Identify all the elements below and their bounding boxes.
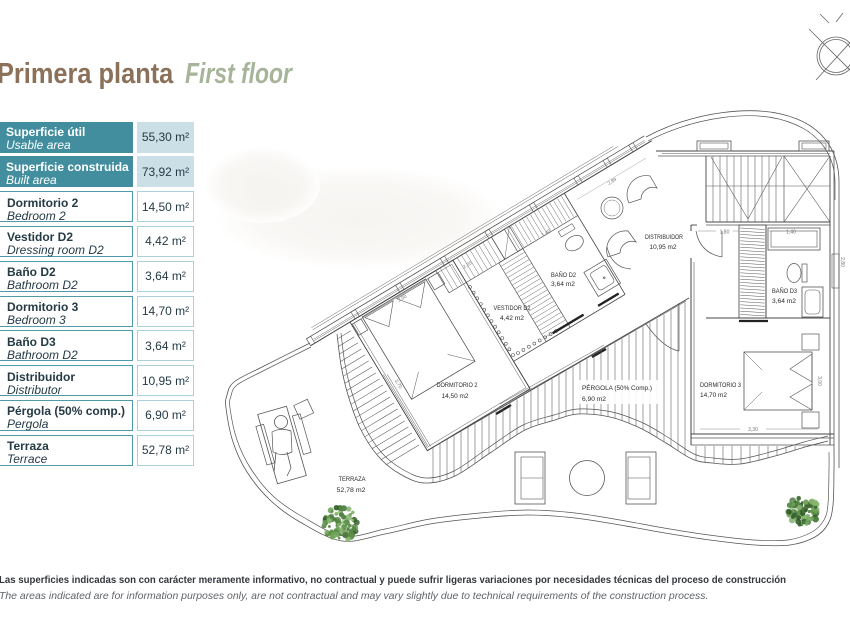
svg-text:6,90 m2: 6,90 m2 <box>582 396 606 403</box>
svg-text:BAÑO D3: BAÑO D3 <box>772 286 797 295</box>
svg-text:14,70 m2: 14,70 m2 <box>700 392 727 399</box>
svg-text:52,78 m2: 52,78 m2 <box>337 487 366 494</box>
svg-text:3,30: 3,30 <box>748 427 758 433</box>
svg-text:BAÑO D2: BAÑO D2 <box>551 270 576 279</box>
svg-text:PÉRGOLA (50% Comp.): PÉRGOLA (50% Comp.) <box>582 383 652 392</box>
svg-text:1,80: 1,80 <box>720 230 730 236</box>
svg-text:TERRAZA: TERRAZA <box>339 476 367 483</box>
svg-text:3,64 m2: 3,64 m2 <box>551 281 575 288</box>
svg-text:VESTIDOR D2: VESTIDOR D2 <box>494 305 531 312</box>
svg-text:1,40: 1,40 <box>541 228 552 238</box>
svg-text:DORMITORIO 2: DORMITORIO 2 <box>437 382 478 389</box>
svg-text:1,40: 1,40 <box>786 230 796 236</box>
svg-text:2,80: 2,80 <box>839 257 845 267</box>
svg-text:3,64 m2: 3,64 m2 <box>772 298 796 305</box>
svg-text:4,42 m2: 4,42 m2 <box>500 315 524 322</box>
svg-text:10,95 m2: 10,95 m2 <box>650 244 677 251</box>
svg-text:3,00: 3,00 <box>816 376 822 386</box>
svg-text:2,20: 2,20 <box>462 260 473 270</box>
svg-text:DISTRIBUIDOR: DISTRIBUIDOR <box>645 234 683 241</box>
svg-text:3,70: 3,70 <box>393 378 403 390</box>
svg-text:14,50 m2: 14,50 m2 <box>442 393 469 400</box>
svg-text:DORMITORIO 3: DORMITORIO 3 <box>700 382 741 389</box>
